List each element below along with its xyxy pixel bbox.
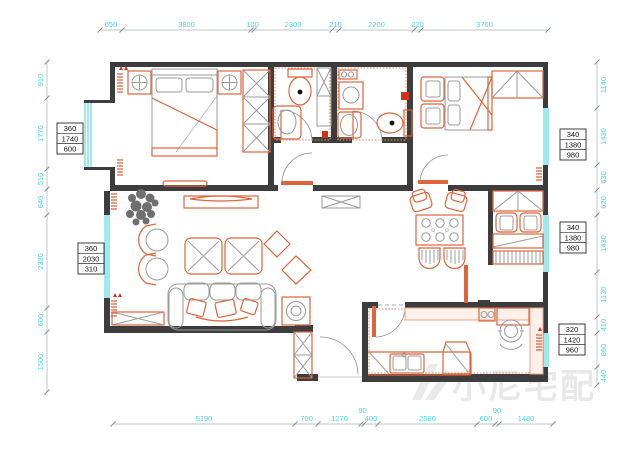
dimension-label: 440: [599, 370, 608, 383]
dimension-label: 2330: [36, 253, 45, 270]
callout-value: 2030: [83, 254, 100, 263]
floor-plan-canvas: 小尼宅配: [0, 0, 640, 452]
door-entry: [318, 337, 362, 377]
dimension-label: 600: [36, 314, 45, 327]
dimension-label: 220: [411, 20, 424, 29]
callout-value: 980: [567, 244, 580, 253]
desk-chair: [496, 213, 517, 232]
callout-value: 360: [85, 244, 98, 253]
dimension-label: 1130: [599, 286, 608, 302]
callout-value: 1380: [565, 140, 582, 149]
nightstand: [218, 71, 241, 94]
dimension-label: 1430: [599, 235, 608, 252]
dimension-chain-bottom: 51907001270904002580600901480: [111, 406, 556, 427]
tv-stand: [184, 196, 258, 208]
study-shelf: [493, 191, 543, 211]
window-study: [544, 215, 548, 272]
window-callout-right-middle: 340 1380 980: [560, 222, 586, 253]
armchair: [139, 224, 168, 256]
door-bedroom2: [418, 155, 448, 184]
door-corridor: [281, 153, 313, 185]
dimension-label: 510: [36, 173, 45, 186]
callout-value: 340: [567, 130, 580, 139]
dimension-chain-left: 910177051064023306001500: [36, 60, 50, 395]
bedroom-2: [421, 71, 543, 130]
double-bed: [152, 69, 217, 156]
dimension-label: 2580: [419, 414, 436, 423]
flow-arrows: [113, 66, 542, 331]
callout-value: 320: [566, 325, 579, 334]
dimension-label: 630: [599, 171, 608, 184]
dimension-label: 650: [105, 20, 118, 29]
shoe-cabinet: [112, 312, 164, 325]
duct-shaft: [317, 68, 331, 126]
shelf-band: [493, 251, 543, 264]
bathroom-1: [273, 68, 331, 139]
coffee-table: [185, 238, 222, 274]
washing-machine: [339, 70, 363, 109]
dimension-chain-right: 1140143063062014301130410860440: [595, 60, 609, 388]
dining-chair: [419, 248, 440, 269]
callout-value: 310: [85, 265, 98, 274]
toilet: [377, 110, 412, 136]
floor-plan-screenshot: 小尼宅配: [0, 0, 640, 452]
study: [493, 191, 543, 264]
callout-value: 360: [64, 124, 77, 133]
nightstand: [128, 71, 151, 94]
dining-chair: [408, 187, 433, 212]
ottoman: [282, 256, 311, 284]
dimension-label: 620: [599, 196, 608, 209]
kitchen: [368, 308, 543, 375]
window-balcony: [105, 215, 109, 298]
dimension-label: 600: [480, 414, 493, 423]
callout-value: 340: [567, 223, 580, 232]
dimension-annotations: 6503800100230021022002203760519070012709…: [36, 20, 608, 427]
door-bath1: [281, 110, 312, 141]
dimension-label: 1140: [599, 77, 608, 93]
window-callout-right-lower: 320 1420 960: [559, 324, 585, 355]
dimension-label: 860: [599, 344, 608, 357]
dining-table: [416, 215, 463, 245]
dimension-label: 3800: [178, 20, 195, 29]
wardrobe-master: [243, 70, 270, 152]
watermark: 小尼宅配: [412, 364, 596, 407]
dimension-label: 1500: [36, 354, 45, 371]
desk-chair: [520, 213, 541, 232]
dining-area: [408, 187, 469, 303]
armchair: [139, 253, 168, 285]
coffee-table: [225, 238, 262, 274]
dimension-label: 90: [493, 406, 501, 415]
door-kitchen: [372, 305, 405, 337]
dimension-label: 640: [36, 196, 45, 209]
tall-cabinet: [294, 332, 312, 378]
dimension-label: 100: [246, 20, 259, 29]
nightstand: [421, 77, 444, 101]
callout-value: 1380: [565, 233, 582, 242]
window-callout-left-upper: 360 1740 600: [57, 123, 83, 154]
callout-value: 1740: [62, 134, 79, 143]
dimension-label: 2200: [368, 20, 385, 29]
dimension-label: 3760: [476, 20, 493, 29]
ottoman: [264, 231, 290, 257]
master-bedroom: [128, 69, 270, 186]
toilet: [288, 69, 312, 105]
half-wall: [464, 265, 468, 303]
sink: [273, 106, 301, 139]
dimension-label: 1270: [331, 414, 348, 423]
counter-top: [405, 308, 543, 320]
dimension-label: 2300: [285, 20, 302, 29]
window-callout-right-upper: 340 1380 980: [560, 129, 586, 160]
floor-drain: [401, 92, 409, 100]
window-callout-left-lower: 360 2030 310: [78, 243, 104, 274]
nightstand: [421, 104, 444, 128]
callout-value: 980: [567, 151, 580, 160]
dimension-label: 5190: [196, 414, 213, 423]
dining-chair: [444, 188, 468, 212]
window-kitchen: [544, 333, 548, 367]
dimension-label: 910: [36, 74, 45, 87]
dimension-label: 1770: [36, 125, 45, 142]
sink: [338, 112, 361, 138]
dining-chair: [444, 248, 465, 269]
dimension-label: 1480: [518, 414, 535, 423]
window-bedroom2: [544, 108, 548, 165]
hall-cabinet: [322, 196, 360, 208]
living-room: [112, 189, 360, 378]
wardrobe-bedroom2: [492, 71, 543, 98]
dimension-label: 410: [599, 319, 608, 332]
dimension-label: 400: [365, 414, 378, 423]
dimension-label: 210: [329, 20, 342, 29]
single-bed: [445, 77, 492, 130]
desk: [493, 234, 543, 248]
dimension-label: 700: [300, 414, 313, 423]
callout-value: 1420: [564, 335, 581, 344]
side-table-lamp: [282, 297, 310, 325]
callout-value: 960: [566, 346, 579, 355]
callout-value: 600: [64, 145, 77, 154]
dimension-chain-top: 6503800100230021022002203760: [98, 20, 551, 33]
sofa: [168, 283, 276, 330]
door-stop: [322, 131, 328, 138]
window-master-bay: [85, 103, 91, 167]
plant: [126, 189, 159, 226]
dimension-label: 1430: [599, 128, 608, 145]
bathroom-2: [338, 70, 412, 138]
